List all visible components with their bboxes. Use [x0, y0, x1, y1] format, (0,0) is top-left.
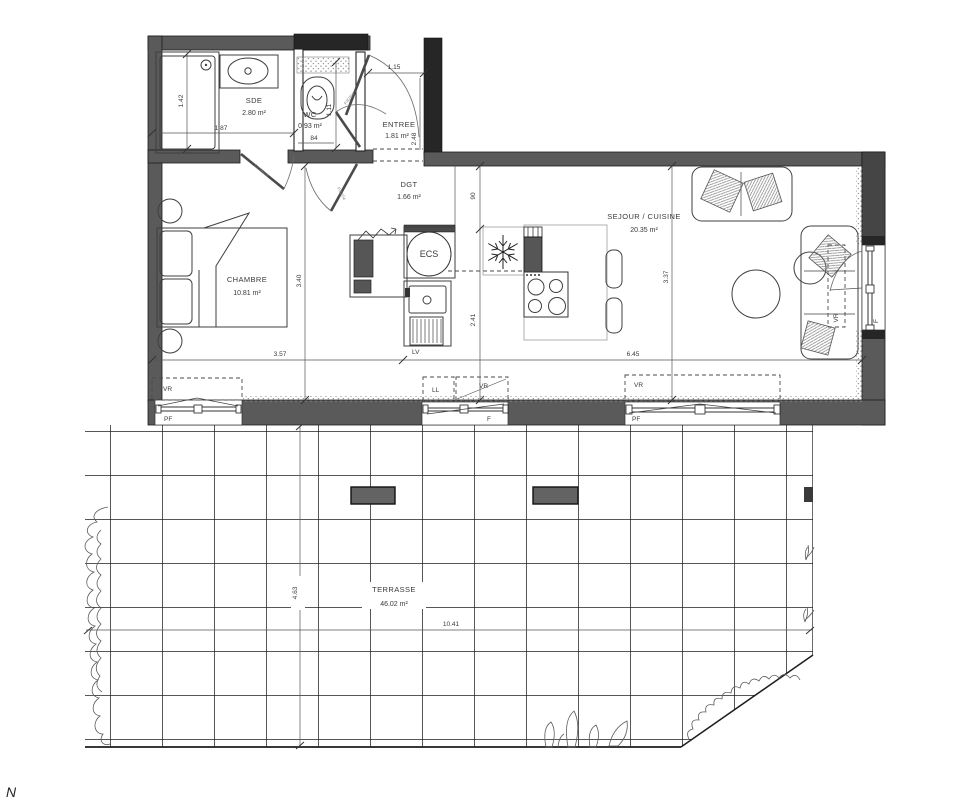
floor-plan-svg: TERRASSE 46.02 m² 4.63 10.41 [0, 0, 954, 800]
insulation-bottom [243, 396, 862, 402]
wall-entree-column [424, 38, 442, 156]
dim-terrasse-depth: 4.63 [292, 586, 299, 599]
apartment-floor [148, 36, 885, 425]
chambre-name: CHAMBRE [227, 275, 267, 284]
washing-machine-label: LL [432, 387, 440, 394]
terrasse-name: TERRASSE [372, 585, 416, 594]
dim-chambre-width: 3.57 [274, 351, 287, 358]
vr-label: VR [163, 386, 172, 393]
dim-wc-width: 84 [310, 135, 318, 142]
chambre-area: 10.81 m² [233, 290, 261, 297]
window-jamb [862, 330, 885, 339]
wall-chambre-sde [148, 150, 240, 163]
sejour-area: 20.35 m² [630, 227, 658, 234]
dgt-area: 1.66 m² [397, 194, 421, 201]
sde-name: SDE [246, 96, 263, 105]
wc-area: 0.93 m² [298, 123, 322, 130]
sejour-name: SEJOUR / CUISINE [607, 212, 681, 221]
insulation-right-upper [856, 166, 863, 245]
dim-cuisine-depth: 2.41 [470, 313, 477, 326]
floor-plan: TERRASSE 46.02 m² 4.63 10.41 [0, 0, 954, 800]
dim-wc-depth: 1.11 [326, 104, 333, 117]
ecs-label: ECS [420, 249, 439, 259]
pf-label: PF [164, 416, 172, 423]
lv-label: LV [412, 349, 420, 356]
sde-area: 2.80 m² [242, 110, 266, 117]
vr-label: VR [479, 383, 488, 390]
dim-entree-depth: 2.48 [411, 132, 418, 145]
north-indicator: N [6, 784, 17, 800]
terrace: TERRASSE 46.02 m² 4.63 10.41 [84, 423, 814, 749]
wall-right-dark [862, 152, 885, 245]
dim-terrasse-width: 10.41 [443, 621, 460, 628]
window-jamb [862, 236, 885, 245]
vr-label: VR [833, 313, 840, 322]
terrace-post [804, 487, 813, 502]
terrace-planter [533, 487, 578, 504]
terrasse-area: 46.02 m² [380, 601, 408, 608]
dim-entree-width: 1.15 [388, 64, 401, 71]
f-label: F [873, 319, 880, 323]
f-label: F [487, 416, 491, 423]
dim-dgt-passage: 90 [470, 192, 477, 200]
wall-top-black [294, 34, 368, 50]
terrace-tiles [85, 425, 813, 747]
wall-top-main [424, 152, 885, 166]
insulation-right-lower [856, 330, 863, 402]
cistern-shelf [297, 57, 349, 73]
tall-unit [524, 237, 542, 274]
pf-label: PF [632, 416, 640, 423]
dim-chambre-depth: 3.40 [296, 274, 303, 287]
dim-sejour-depth: 3.37 [663, 270, 670, 283]
wc-name: WC [303, 110, 316, 119]
dim-shower-width: 1.42 [178, 94, 185, 107]
entree-name: ENTREE [383, 120, 416, 129]
wall-wc-bottom [288, 150, 373, 163]
dim-sejour-width: 6.45 [627, 351, 640, 358]
dim-sde-width: 1.87 [215, 125, 228, 132]
cooktop-icon [524, 272, 568, 317]
dgt-name: DGT [400, 180, 417, 189]
entree-area: 1.81 m² [385, 133, 409, 140]
terrace-planter [351, 487, 395, 504]
vr-label: VR [634, 382, 643, 389]
